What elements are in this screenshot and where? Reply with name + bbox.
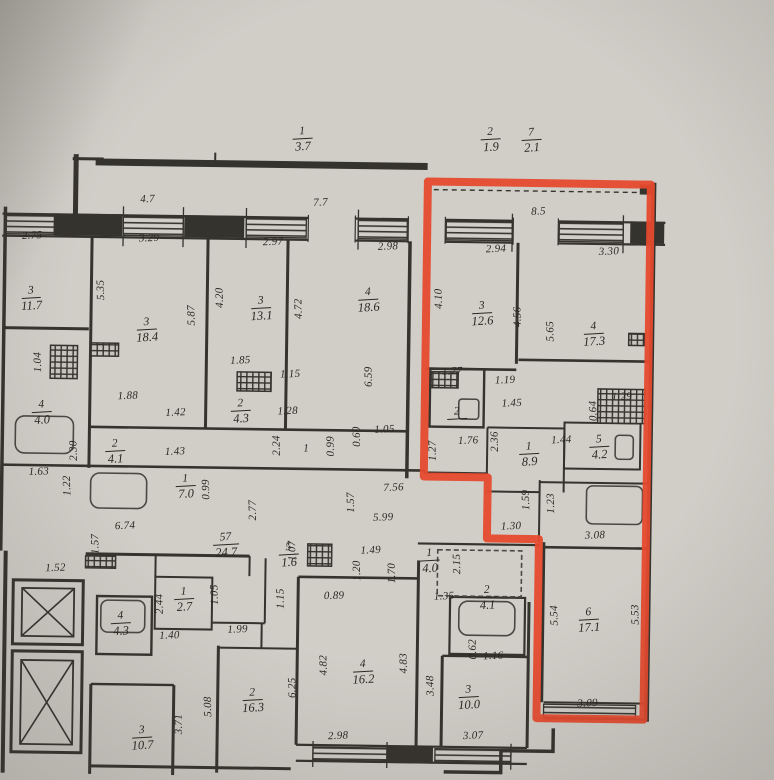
room-area: 18.6 xyxy=(357,300,380,315)
room-area-label: 24.3 xyxy=(230,396,251,426)
room-number: 57 xyxy=(212,530,238,545)
dimension-label: 3.30 xyxy=(599,246,620,258)
room-area-label: 51.6 xyxy=(278,540,299,570)
room-area: 13.1 xyxy=(250,308,273,323)
room-number: 1 xyxy=(419,546,440,561)
dimension-label: 1.29 xyxy=(611,391,632,403)
dimension-label: 2.94 xyxy=(486,244,507,256)
room-area-label: 14.0 xyxy=(419,545,440,575)
room-number: 4 xyxy=(583,320,604,335)
room-area-label: 418.6 xyxy=(357,285,380,315)
room-area-label: 311.7 xyxy=(20,283,43,313)
room-area: 4.2 xyxy=(589,447,610,462)
dimension-label: 1.70 xyxy=(387,563,398,584)
room-area: 2.1 xyxy=(522,140,543,155)
room-area: 24.7 xyxy=(213,545,239,561)
dimension-label: 1.05 xyxy=(209,584,220,605)
dimension-label: 2.75 xyxy=(22,230,43,242)
room-area-label: 417.3 xyxy=(582,319,605,349)
dimension-label: 1.42 xyxy=(165,407,186,419)
room-area-label: 72.1 xyxy=(521,125,542,155)
dimension-label: 1.35 xyxy=(434,591,455,603)
dimension-label: 2.44 xyxy=(154,594,165,615)
dimension-label: 0.62 xyxy=(468,639,479,660)
dimension-label: 4.7 xyxy=(140,194,155,206)
dimension-label: 3.07 xyxy=(463,730,484,742)
room-number: 3 xyxy=(136,316,157,331)
dimension-label: 1.63 xyxy=(28,466,49,478)
room-area-label: 5724.7 xyxy=(212,529,239,560)
dimension-label: 1.15 xyxy=(275,588,286,609)
room-area-label: 310.7 xyxy=(130,722,153,752)
dimension-label: 5.99 xyxy=(373,512,394,524)
room-area: 4.0 xyxy=(420,561,441,576)
room-number: 6 xyxy=(578,606,599,621)
scanned-floor-plan-page: 4.77.78.52.753.292.972.982.943.305.355.8… xyxy=(0,0,774,780)
dimension-label: 0.89 xyxy=(324,590,345,602)
dimension-label: 5.08 xyxy=(203,696,214,717)
room-area-label: 216.3 xyxy=(241,685,264,715)
dimension-label: 2.98 xyxy=(328,730,349,742)
dimension-label: 1.30 xyxy=(501,521,522,533)
room-number: 7 xyxy=(521,126,542,141)
dimension-label: 1.28 xyxy=(277,406,298,418)
room-number: 5 xyxy=(589,433,610,448)
dimension-label: 1.57 xyxy=(346,492,357,513)
room-number: 5 xyxy=(278,541,299,556)
dimension-label: 2.98 xyxy=(378,241,399,253)
dimension-label: 1.40 xyxy=(159,630,180,642)
room-area-label: 13.7 xyxy=(292,124,313,154)
room-area: 4.3 xyxy=(231,411,252,426)
dimension-label: 1.05 xyxy=(374,424,395,436)
room-number: 3 xyxy=(21,284,42,299)
room-number: 2 xyxy=(230,397,251,412)
room-area-label: 18.9 xyxy=(518,439,539,469)
dimension-label: 1.04 xyxy=(33,352,44,373)
dimension-label: 5.53 xyxy=(630,604,641,625)
dimension-label: 3.71 xyxy=(174,714,185,735)
room-number: 2 xyxy=(480,125,501,140)
dimension-label: 4.10 xyxy=(434,288,445,309)
dimension-label: 0.64 xyxy=(588,401,599,422)
dimension-label: 1.57 xyxy=(90,534,101,555)
room-area: 11.7 xyxy=(21,298,43,313)
room-area-label: 21.9 xyxy=(480,124,501,154)
dimension-label: 7.56 xyxy=(383,482,404,494)
room-number: 1 xyxy=(173,585,194,600)
dimension-label: 5.54 xyxy=(549,605,560,626)
room-area: 10.7 xyxy=(131,737,154,752)
room-area-label: 24.1 xyxy=(476,582,497,612)
dimension-label: 3.29 xyxy=(139,233,160,245)
dimension-label: 7.7 xyxy=(313,197,328,209)
room-area-label: 2 xyxy=(446,404,467,420)
room-area: 8.9 xyxy=(519,454,540,469)
dimension-label: 1.23 xyxy=(546,493,557,514)
dimension-label: 1.27 xyxy=(427,440,438,461)
dimension-label: 0.99 xyxy=(325,436,336,457)
dimension-label: 1.45 xyxy=(501,398,522,410)
dimension-label: 1.16 xyxy=(483,651,504,663)
floor-plan: 4.77.78.52.753.292.972.982.943.305.355.8… xyxy=(0,0,774,780)
room-area-label: 313.1 xyxy=(249,293,272,323)
dimension-label: 3.08 xyxy=(585,530,606,542)
room-area-label: 310.0 xyxy=(457,682,480,712)
room-number: 1 xyxy=(519,440,540,455)
room-number: 3 xyxy=(251,294,272,309)
dimension-label: 1.99 xyxy=(227,624,248,636)
room-area: 12.6 xyxy=(471,313,494,328)
room-area: 10.0 xyxy=(458,697,481,712)
dimension-label: 1.77 xyxy=(442,366,463,378)
room-area-label: 24.1 xyxy=(104,436,125,466)
dimension-label: 4.72 xyxy=(293,298,304,319)
room-number: 2 xyxy=(476,583,497,598)
room-area-label: 318.4 xyxy=(135,314,158,344)
dimension-label: 1.15 xyxy=(280,369,301,381)
dimension-label: 3.48 xyxy=(425,675,436,696)
dimension-label: 1.76 xyxy=(458,435,479,447)
room-area: 7.0 xyxy=(176,486,197,501)
room-number: 4 xyxy=(358,286,379,301)
dimension-label: 1.19 xyxy=(495,375,516,387)
room-area: 1.6 xyxy=(279,555,300,570)
room-number: 4 xyxy=(31,398,52,413)
room-number: 2 xyxy=(105,437,126,452)
dimension-label: 2.97 xyxy=(263,237,284,249)
dimension-label: 1.85 xyxy=(230,355,251,367)
dimension-label: 8.5 xyxy=(531,206,546,218)
room-area: 4.1 xyxy=(105,451,126,466)
room-area: 2.7 xyxy=(174,599,195,614)
room-number: 2 xyxy=(446,405,467,420)
room-number: 4 xyxy=(352,658,373,673)
room-area: 4.1 xyxy=(477,597,498,612)
dimension-label: 4.82 xyxy=(318,655,329,676)
room-area-label: 54.2 xyxy=(589,432,610,462)
room-area: 4.0 xyxy=(32,412,53,427)
room-area-label: 12.7 xyxy=(173,584,194,614)
room-number: 1 xyxy=(175,472,196,487)
room-area-label: 44.3 xyxy=(110,608,131,638)
dimension-label: 2.24 xyxy=(272,435,283,456)
dimension-label: 5.35 xyxy=(96,280,107,301)
dimension-label: 2.36 xyxy=(490,431,501,452)
room-area-label: 416.2 xyxy=(351,657,374,687)
dimension-label: 4.83 xyxy=(398,653,409,674)
room-area: 3.7 xyxy=(293,139,314,154)
dimension-label: 4.20 xyxy=(215,287,226,308)
room-area-label: 44.0 xyxy=(31,397,52,427)
room-number: 3 xyxy=(132,723,153,738)
dimension-label: 3.09 xyxy=(577,698,598,710)
room-number: 1 xyxy=(292,125,313,140)
dimension-label: 6.59 xyxy=(363,366,374,387)
dimension-label: 1.52 xyxy=(45,563,66,575)
dimension-label: 2.30 xyxy=(68,440,79,461)
dimension-label: 0.99 xyxy=(201,479,212,500)
dimension-label: 1.43 xyxy=(165,446,186,458)
dimension-label: 1.59 xyxy=(521,490,532,511)
room-number: 3 xyxy=(471,299,492,314)
room-area: 1.9 xyxy=(481,139,502,154)
dimension-label: 0.60 xyxy=(352,426,363,447)
dimension-label: 1.22 xyxy=(62,475,73,496)
room-area: 4.3 xyxy=(111,623,132,638)
dimension-label: 4.56 xyxy=(512,306,523,327)
room-number: 4 xyxy=(110,609,131,624)
room-area: 16.2 xyxy=(352,672,375,687)
room-area: 17.3 xyxy=(583,334,606,349)
dimension-label: 5.87 xyxy=(186,305,197,326)
dimension-label: 6.25 xyxy=(287,677,298,698)
room-area: 18.4 xyxy=(136,329,159,344)
dimension-label: 1.20 xyxy=(352,560,363,581)
room-number: 3 xyxy=(458,683,479,698)
dimension-label: 1 xyxy=(303,443,309,454)
dimension-label: 1.88 xyxy=(117,390,138,402)
room-area-label: 312.6 xyxy=(470,298,493,328)
room-area-label: 617.1 xyxy=(577,605,600,635)
room-number: 2 xyxy=(242,686,263,701)
room-area-label: 17.0 xyxy=(175,471,196,501)
dimension-label: 6.74 xyxy=(115,520,136,532)
plan-labels-layer: 4.77.78.52.753.292.972.982.943.305.355.8… xyxy=(0,0,774,780)
room-area: 16.3 xyxy=(242,700,265,715)
dimension-label: 2.15 xyxy=(452,554,463,575)
dimension-label: 1.49 xyxy=(360,545,381,557)
dimension-label: 5.65 xyxy=(545,321,556,342)
dimension-label: 2.77 xyxy=(248,500,259,521)
dimension-label: 1.44 xyxy=(551,435,572,447)
room-area: 17.1 xyxy=(578,620,601,635)
